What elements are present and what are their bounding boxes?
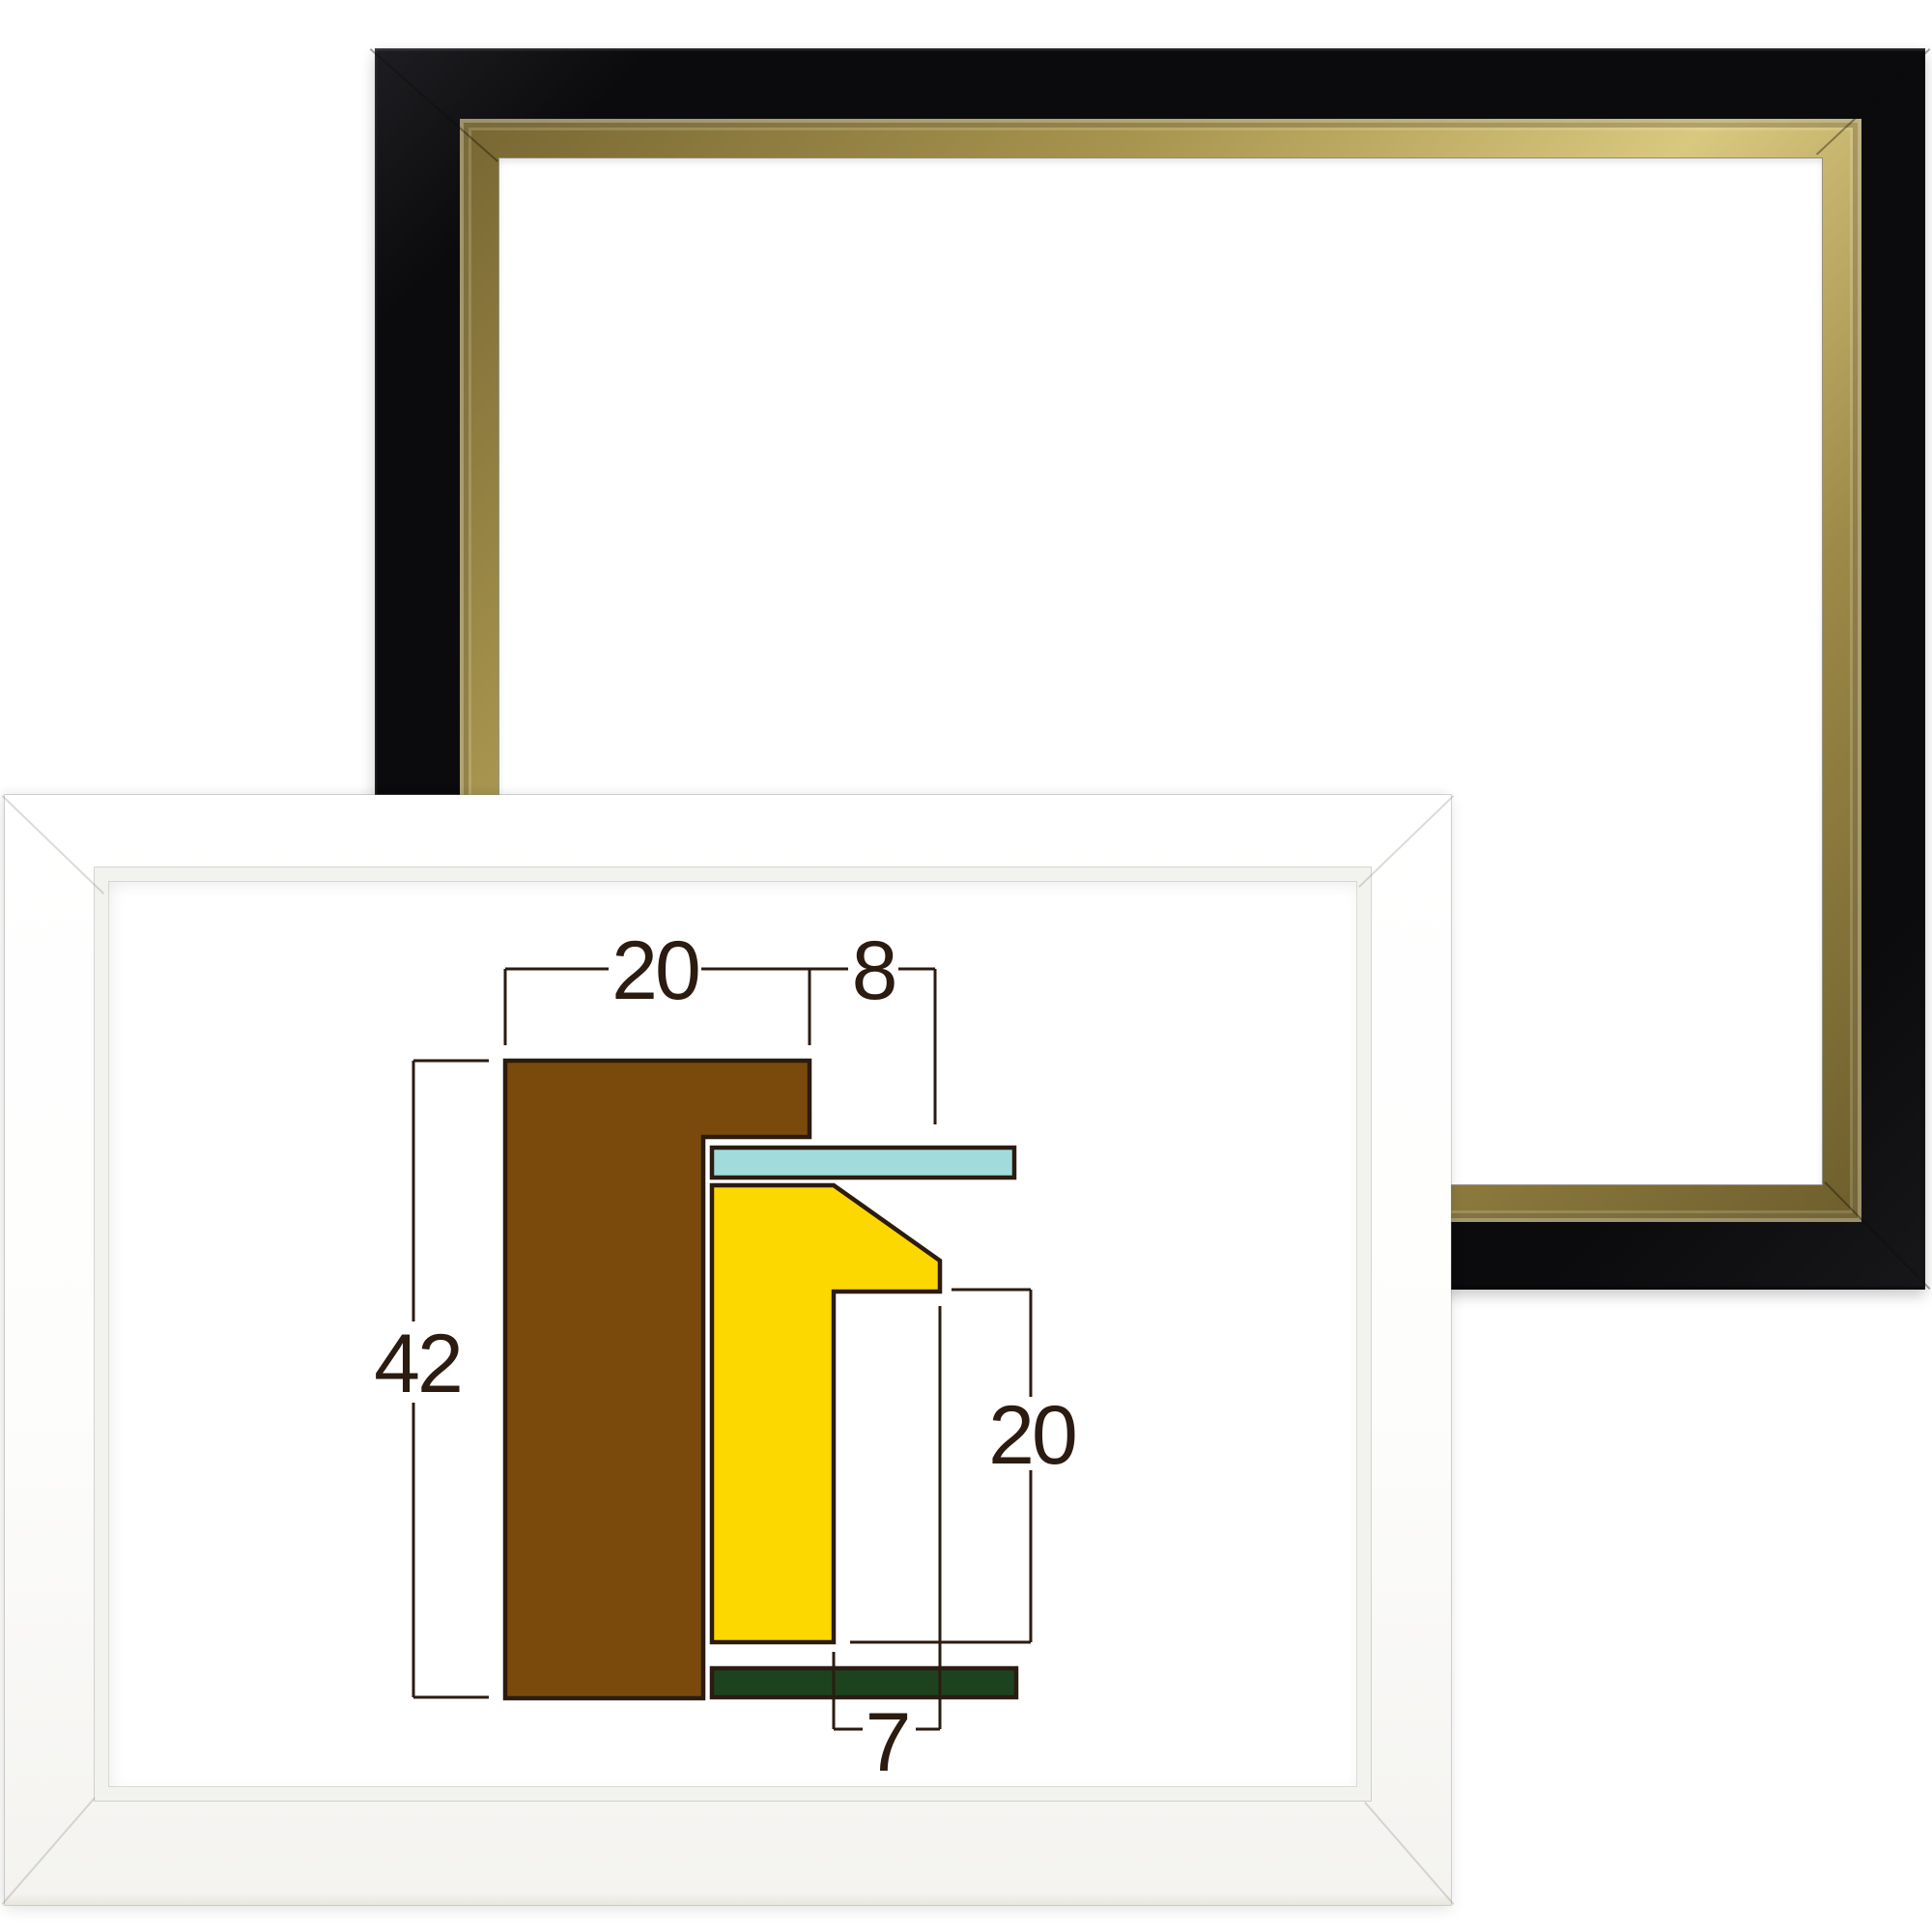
white-frame-opening bbox=[95, 867, 1371, 1801]
miter-seam bbox=[2, 795, 104, 895]
page-background: 20 8 42 20 7 bbox=[0, 0, 1932, 1932]
miter-seam bbox=[370, 48, 498, 162]
miter-seam bbox=[1816, 48, 1930, 156]
miter-seam bbox=[1358, 795, 1454, 888]
miter-seam bbox=[1, 1798, 95, 1905]
miter-seam bbox=[1364, 1802, 1454, 1905]
white-box-frame bbox=[5, 795, 1451, 1905]
miter-seam bbox=[1824, 1181, 1930, 1290]
